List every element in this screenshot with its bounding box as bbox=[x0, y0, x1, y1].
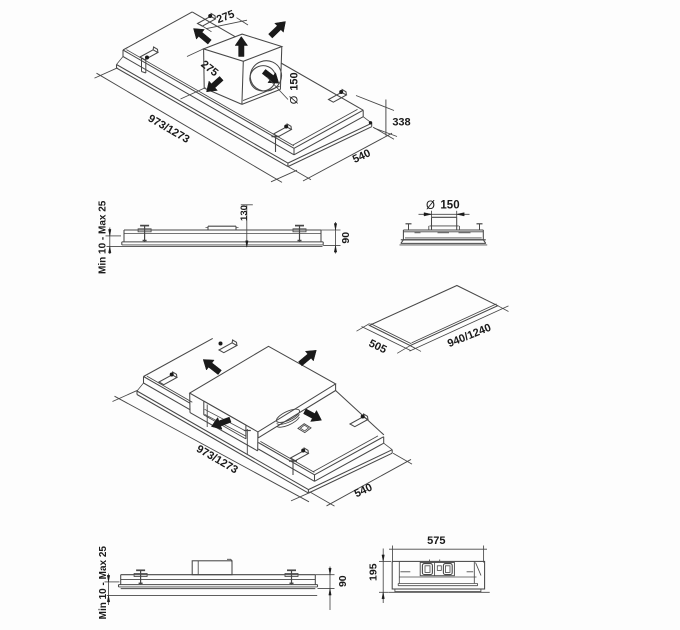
svg-text:338: 338 bbox=[392, 117, 410, 129]
svg-text:90: 90 bbox=[337, 575, 349, 587]
svg-text:Ø: Ø bbox=[289, 95, 301, 104]
svg-text:150: 150 bbox=[440, 199, 459, 211]
svg-text:130: 130 bbox=[239, 205, 250, 221]
svg-text:90: 90 bbox=[340, 232, 352, 244]
svg-text:150: 150 bbox=[289, 72, 301, 90]
svg-text:Min 10 - Max 25: Min 10 - Max 25 bbox=[98, 546, 109, 620]
svg-text:Ø: Ø bbox=[426, 200, 435, 212]
svg-text:Min 10 - Max 25: Min 10 - Max 25 bbox=[98, 200, 109, 274]
svg-text:575: 575 bbox=[427, 535, 445, 547]
svg-text:195: 195 bbox=[367, 563, 379, 581]
